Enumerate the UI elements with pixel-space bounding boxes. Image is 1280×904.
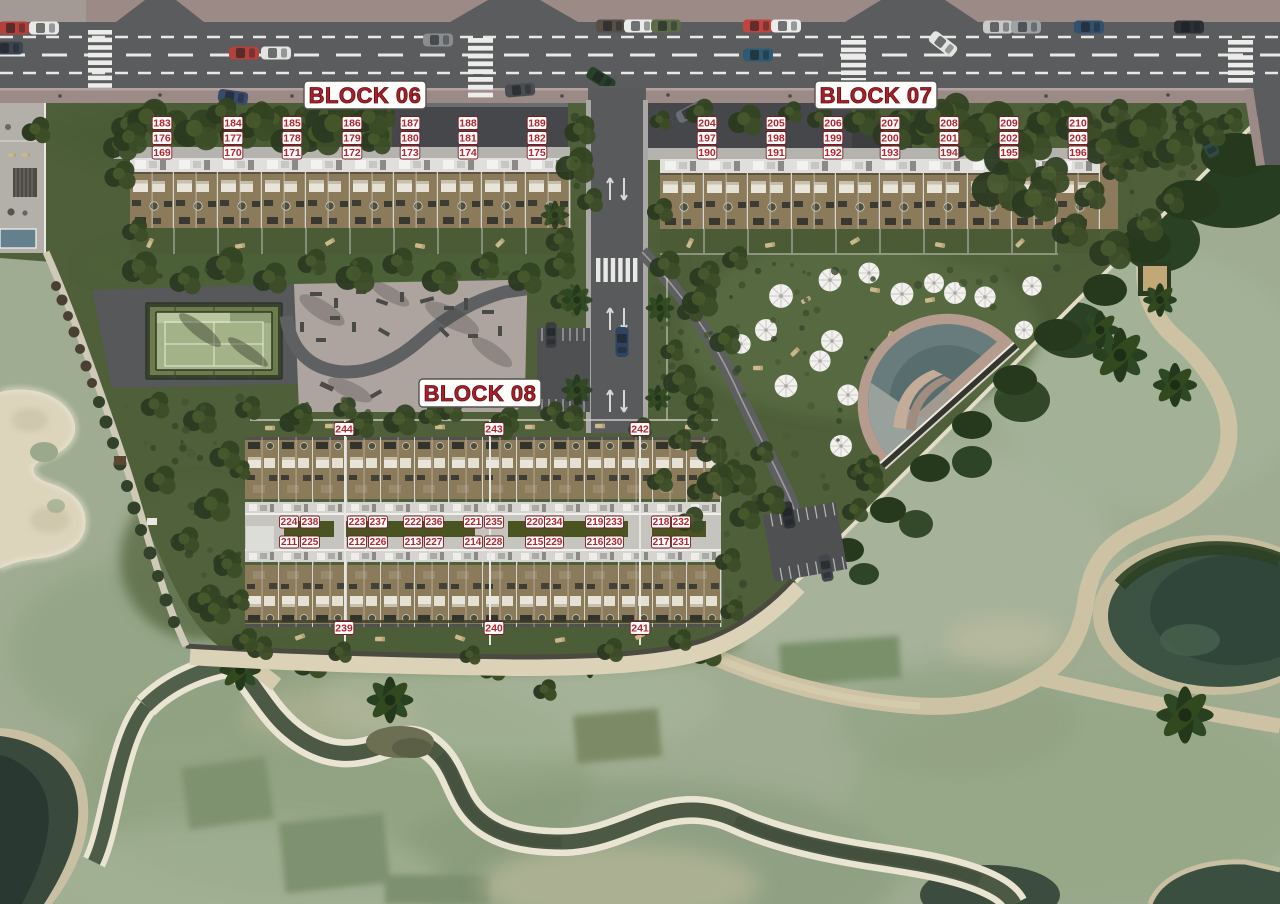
svg-text:210: 210 [1069,117,1087,129]
svg-text:238: 238 [302,517,319,528]
svg-text:193: 193 [881,147,899,159]
svg-text:220: 220 [527,517,544,528]
svg-text:188: 188 [459,117,477,129]
svg-text:231: 231 [673,537,690,548]
svg-text:233: 233 [606,517,623,528]
svg-text:227: 227 [426,537,443,548]
svg-text:173: 173 [401,147,419,159]
svg-text:180: 180 [401,132,419,144]
svg-text:176: 176 [153,132,171,144]
svg-text:205: 205 [767,117,785,129]
svg-text:186: 186 [343,117,361,129]
svg-text:234: 234 [546,517,563,528]
svg-text:221: 221 [465,517,482,528]
svg-text:213: 213 [405,537,422,548]
svg-text:198: 198 [767,132,785,144]
svg-text:239: 239 [335,622,353,634]
svg-text:178: 178 [283,132,301,144]
svg-text:228: 228 [486,537,503,548]
svg-text:226: 226 [370,537,387,548]
svg-text:235: 235 [486,517,503,528]
svg-text:241: 241 [631,622,649,634]
svg-text:200: 200 [881,132,899,144]
svg-text:237: 237 [370,517,387,528]
svg-text:197: 197 [698,132,716,144]
svg-text:230: 230 [606,537,623,548]
svg-text:236: 236 [426,517,443,528]
svg-text:215: 215 [527,537,544,548]
svg-text:187: 187 [401,117,419,129]
svg-text:203: 203 [1069,132,1087,144]
svg-text:170: 170 [224,147,242,159]
svg-text:206: 206 [824,117,842,129]
svg-text:242: 242 [631,423,649,435]
svg-text:240: 240 [485,622,503,634]
svg-text:222: 222 [405,517,422,528]
svg-text:199: 199 [824,132,842,144]
svg-text:184: 184 [224,117,242,129]
svg-text:232: 232 [673,517,690,528]
svg-text:243: 243 [485,423,503,435]
svg-text:217: 217 [653,537,670,548]
svg-text:169: 169 [153,147,171,159]
svg-text:225: 225 [302,537,319,548]
svg-text:192: 192 [824,147,842,159]
svg-text:175: 175 [528,147,546,159]
svg-text:177: 177 [224,132,242,144]
svg-text:223: 223 [349,517,366,528]
svg-text:211: 211 [281,537,298,548]
svg-text:209: 209 [1000,117,1018,129]
svg-text:195: 195 [1000,147,1018,159]
svg-text:174: 174 [459,147,477,159]
svg-text:171: 171 [283,147,301,159]
svg-text:216: 216 [587,537,604,548]
svg-text:BLOCK 06: BLOCK 06 [309,83,422,108]
svg-text:190: 190 [698,147,716,159]
svg-text:224: 224 [281,517,298,528]
svg-text:219: 219 [587,517,604,528]
svg-text:229: 229 [546,537,563,548]
svg-text:182: 182 [528,132,546,144]
svg-text:181: 181 [459,132,477,144]
svg-text:218: 218 [653,517,670,528]
svg-text:179: 179 [343,132,361,144]
svg-text:172: 172 [343,147,361,159]
svg-text:191: 191 [767,147,785,159]
svg-text:194: 194 [940,147,958,159]
svg-text:183: 183 [153,117,171,129]
svg-text:204: 204 [698,117,716,129]
svg-text:BLOCK 08: BLOCK 08 [424,381,537,406]
svg-text:207: 207 [881,117,899,129]
svg-text:201: 201 [940,132,958,144]
svg-text:189: 189 [528,117,546,129]
svg-text:185: 185 [283,117,301,129]
svg-text:214: 214 [465,537,482,548]
svg-text:BLOCK 07: BLOCK 07 [820,83,933,108]
svg-text:212: 212 [349,537,366,548]
svg-text:196: 196 [1069,147,1087,159]
svg-text:208: 208 [940,117,958,129]
svg-text:244: 244 [335,423,353,435]
svg-text:202: 202 [1000,132,1018,144]
